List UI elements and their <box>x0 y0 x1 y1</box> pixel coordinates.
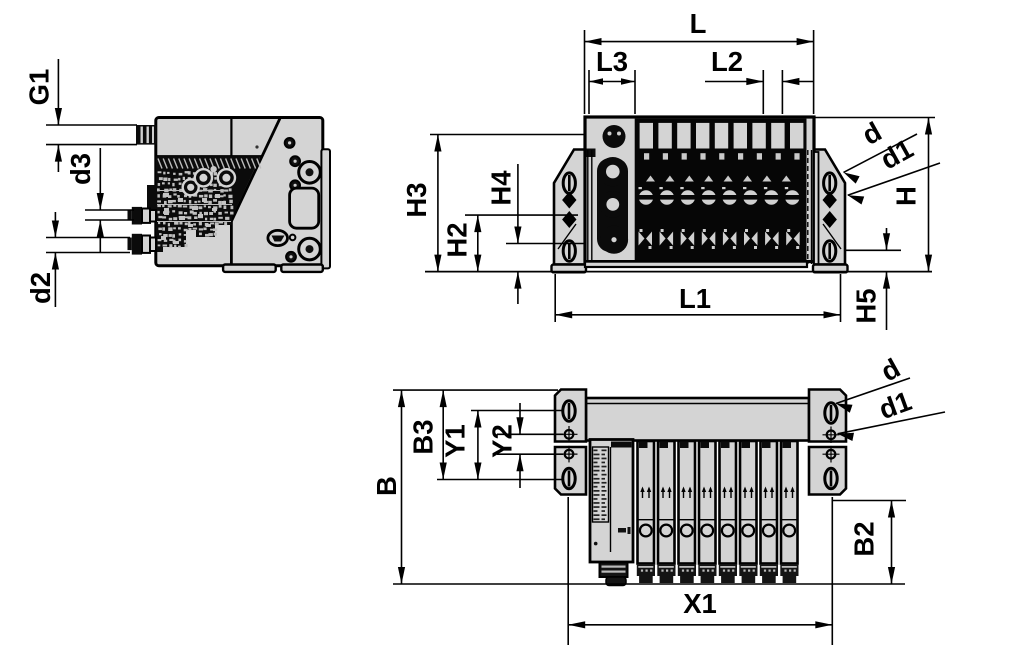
svg-text:d3: d3 <box>65 153 96 185</box>
svg-text:H: H <box>891 186 922 206</box>
svg-text:H2: H2 <box>442 222 473 257</box>
svg-text:Y1: Y1 <box>440 424 471 458</box>
svg-text:G1: G1 <box>24 69 55 106</box>
svg-text:B3: B3 <box>408 419 439 454</box>
svg-text:H4: H4 <box>486 170 517 206</box>
svg-text:H5: H5 <box>851 288 882 323</box>
svg-text:L2: L2 <box>711 46 743 77</box>
svg-text:d2: d2 <box>25 272 56 304</box>
svg-text:L3: L3 <box>596 46 628 77</box>
svg-text:L: L <box>690 8 707 39</box>
svg-text:B2: B2 <box>849 521 880 556</box>
svg-text:H3: H3 <box>401 182 432 217</box>
svg-text:Y2: Y2 <box>487 424 518 458</box>
svg-text:X1: X1 <box>683 588 717 619</box>
svg-text:L1: L1 <box>679 283 711 314</box>
svg-text:B: B <box>371 476 402 496</box>
